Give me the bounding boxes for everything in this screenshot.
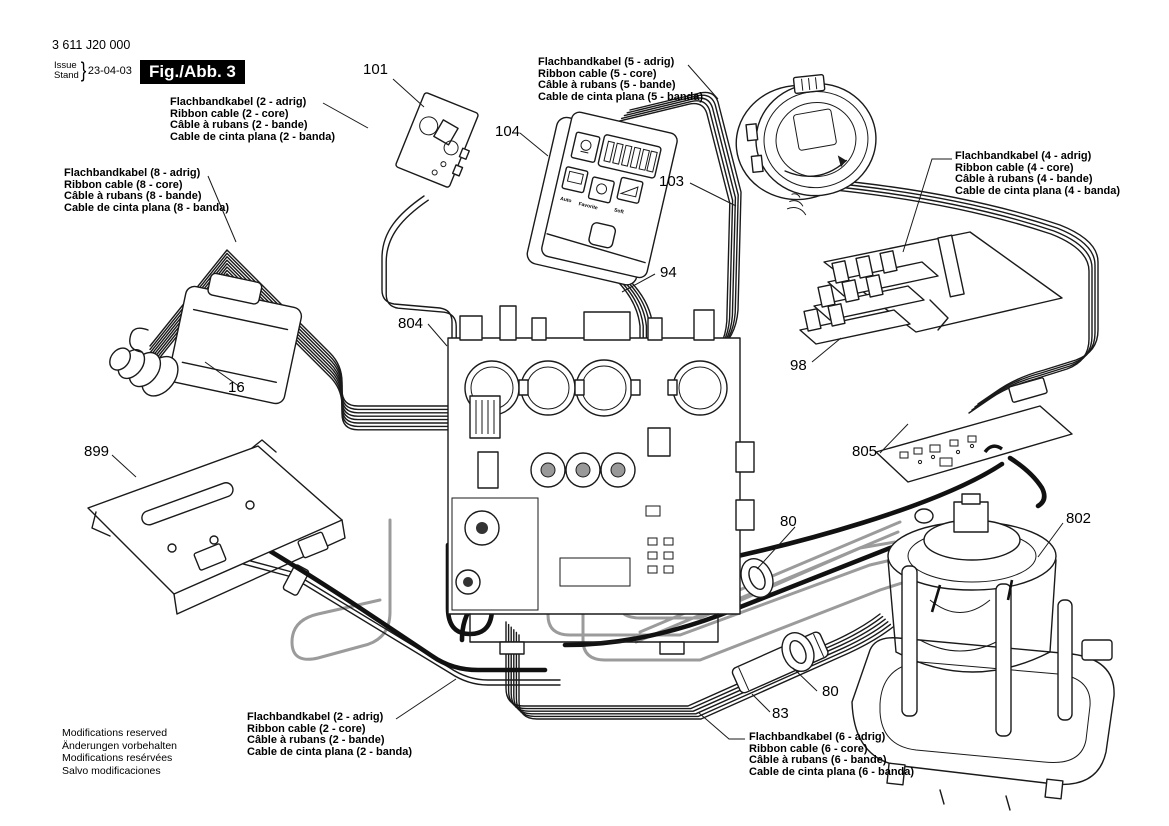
part-callout-94: 94: [660, 265, 677, 280]
part-callout-83: 83: [772, 706, 789, 721]
cable-label-4core: Flachbandkabel (4 - adrig) Ribbon cable …: [955, 151, 1120, 197]
part-callout-802: 802: [1066, 511, 1091, 526]
cable-label-6core: Flachbandkabel (6 - adrig) Ribbon cable …: [749, 732, 914, 778]
part-callout-103: 103: [659, 174, 684, 189]
component-101: [395, 92, 483, 190]
part-callout-16: 16: [228, 380, 245, 395]
component-98: [800, 232, 1062, 344]
cable-label-2core-bottom: Flachbandkabel (2 - adrig) Ribbon cable …: [247, 712, 412, 758]
component-899: [88, 440, 345, 614]
part-callout-804: 804: [398, 316, 423, 331]
component-804: [448, 306, 754, 654]
cable-label-2core-top: Flachbandkabel (2 - adrig) Ribbon cable …: [170, 97, 335, 143]
cable-label-5core: Flachbandkabel (5 - adrig) Ribbon cable …: [538, 57, 703, 103]
brace-glyph: }: [81, 59, 87, 83]
issue-date: 23-04-03: [88, 65, 132, 77]
component-103: [730, 70, 884, 222]
part-callout-80-upper: 80: [780, 514, 797, 529]
modifications-notice: Modifications reserved Änderungen vorbeh…: [62, 727, 177, 777]
cable-label-8core: Flachbandkabel (8 - adrig) Ribbon cable …: [64, 168, 229, 214]
diagram-page: Auto Favorite Soft: [0, 0, 1169, 826]
component-805: [876, 377, 1072, 482]
part-callout-899: 899: [84, 444, 109, 459]
ribbon-cable-6-core: [506, 614, 893, 719]
part-callout-98: 98: [790, 358, 807, 373]
component-104: Auto Favorite Soft: [525, 108, 678, 289]
document-part-number: 3 611 J20 000: [52, 38, 130, 52]
part-callout-101: 101: [363, 62, 388, 77]
issue-stand-block: Issue Stand } 23-04-03: [54, 59, 132, 83]
cable-sleeve-83: [731, 631, 830, 695]
figure-label: Fig./Abb. 3: [140, 60, 245, 84]
part-callout-104: 104: [495, 124, 520, 139]
component-16: [105, 268, 307, 405]
stand-label: Stand: [54, 71, 79, 81]
part-callout-805: 805: [852, 444, 877, 459]
part-callout-80-lower: 80: [822, 684, 839, 699]
